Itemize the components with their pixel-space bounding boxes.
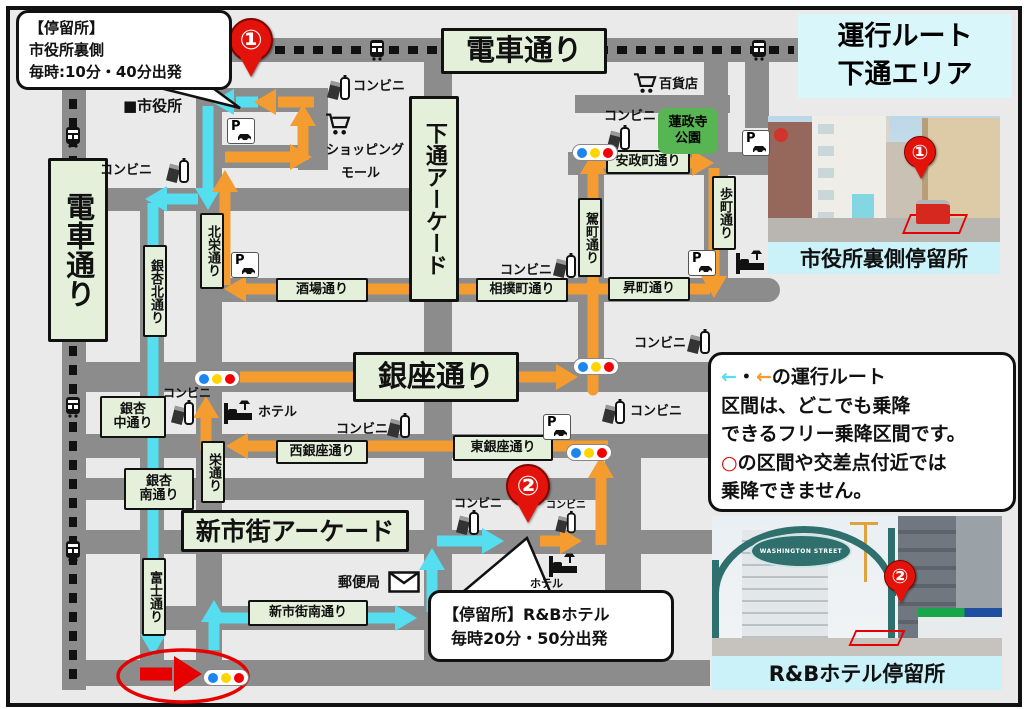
photo1-caption: 市役所裏側停留所 [768, 242, 1000, 274]
bus-stop-pin-1: ① [229, 18, 273, 88]
traffic-light-icon [194, 370, 240, 387]
convenience-store-icon [456, 509, 480, 541]
photo2-caption: R&Bホテル停留所 [712, 656, 1002, 690]
signal-blue [577, 148, 587, 158]
label-line: 銀杏中通り [113, 403, 152, 431]
tram-icon [64, 396, 82, 422]
notice-dot: ・ [737, 366, 756, 388]
photo2-pin: ② [884, 560, 918, 611]
label-icho-minami-dori: 銀杏南通り [124, 468, 194, 510]
signal-blue [578, 362, 588, 372]
convenience-store-label: コンビニ [100, 164, 152, 178]
parking-icon: P [543, 414, 571, 440]
park-name-line: 蓮政寺 [668, 115, 707, 131]
notice-line2: 区間は、どこでも乗降 [721, 392, 1003, 421]
convenience-store-icon [687, 328, 711, 360]
traffic-light-icon [203, 669, 249, 686]
photo1-road [768, 218, 1000, 242]
label-nishi-ginza-dori: 西銀座通り [276, 440, 368, 464]
label-icho-kita-dori: 銀杏北通り [143, 245, 167, 337]
notice-line5: 乗降できません。 [721, 477, 1003, 506]
hotel-bed-icon [223, 400, 253, 430]
notice-line1-rest: の運行ルート [772, 366, 886, 388]
convenience-store-icon [387, 412, 411, 444]
bus-stop-2-callout: 【停留所】R&Bホテル 毎時20分・50分出発 [428, 590, 674, 662]
convenience-store-icon [327, 74, 351, 106]
traffic-light-icon [572, 144, 618, 161]
label-ginza-dori: 銀座通り [353, 352, 519, 402]
callout2-line2: 毎時20分・50分出発 [443, 627, 659, 651]
notice-line4-rest: の区間や交差点付近では [738, 452, 947, 474]
convenience-store-label: コンビニ [500, 264, 552, 278]
bus-stop-1-callout: 【停留所】 市役所裏側 毎時:10分・40分出発 [16, 10, 232, 90]
city-hall-label: ■市役所 [123, 98, 182, 115]
post-office-envelope-icon [388, 571, 420, 597]
signal-blue [208, 673, 218, 683]
tram-icon [64, 540, 82, 566]
label-shinshigai-arcade: 新市街アーケード [181, 510, 409, 552]
notice-line4: ○の区間や交差点付近では [721, 449, 1003, 478]
callout1-line1: 【停留所】 [29, 18, 219, 40]
cyan-arrow-glyph: ← [721, 366, 737, 388]
convenience-store-icon [555, 510, 577, 539]
convenience-store-label: コンビニ [604, 110, 656, 124]
street-nishi-higashi-ginza [86, 434, 740, 458]
callout1-line2: 市役所裏側 [29, 40, 219, 62]
street-sakae-column [196, 62, 222, 660]
callout1-line3: 毎時:10分・40分出発 [29, 62, 219, 84]
photo-rb-hotel-stop: WASHINGTON STREET ② [712, 516, 1002, 656]
orange-arrow-glyph: ← [756, 366, 772, 388]
signal-yellow [590, 148, 600, 158]
photo1-red-shuttle-bus [916, 200, 950, 224]
title-line1: 運行ルート [838, 18, 973, 56]
parking-icon: P [227, 118, 255, 144]
photo2-crane-arm [850, 522, 878, 525]
hotel-label: ホテル [530, 578, 563, 590]
shopping-cart-icon [632, 70, 657, 100]
signal-red [603, 148, 613, 158]
convenience-store-label: コンビニ [336, 423, 388, 437]
label-higashi-ginza-dori: 東銀座通り [453, 435, 553, 461]
photo2-arch-sign: WASHINGTON STREET [750, 534, 852, 568]
pin-tail [913, 164, 929, 187]
photo1-pin: ① [904, 136, 938, 187]
post-office-label: 郵便局 [338, 576, 380, 591]
route-map-canvas: 電車通り 電車通り 下通アーケード 銀座通り 新市街アーケード 北栄通り 銀杏北… [0, 0, 1024, 709]
signal-yellow [591, 362, 601, 372]
tram-icon [750, 39, 768, 65]
parking-icon: P [742, 130, 770, 156]
pin-number: ② [884, 560, 916, 592]
shopping-mall-label: モール [341, 167, 380, 181]
label-densha-dori-top: 電車通り [441, 28, 607, 74]
title-line2: 下通エリア [838, 56, 973, 94]
pin-number: ② [506, 464, 550, 508]
convenience-store-label: コンビニ [353, 80, 405, 94]
signal-red [597, 448, 607, 458]
label-hokuei-dori: 北栄通り [200, 213, 224, 289]
signal-red [234, 673, 244, 683]
signal-yellow [221, 673, 231, 683]
label-fuji-dori: 富士通り [142, 558, 166, 636]
label-shinshigai-minami-dori: 新市街南通り [248, 600, 368, 626]
convenience-store-icon [553, 252, 577, 284]
photo2-stop-zone-outline [848, 630, 905, 646]
label-shimotori-arcade: 下通アーケード [409, 96, 459, 302]
parking-icon: P [688, 250, 716, 276]
department-store-label: 百貨店 [659, 78, 698, 92]
map-title: 運行ルート 下通エリア [798, 14, 1012, 98]
street-northeast-stub [745, 62, 769, 128]
pin-tail [240, 57, 262, 88]
pin-tail [517, 503, 539, 534]
signal-red [604, 362, 614, 372]
signal-blue [199, 374, 209, 384]
label-densha-dori-left: 電車通り [48, 158, 108, 342]
label-nobori-machi-dori: 昇町通り [608, 277, 690, 301]
tram-icon [368, 39, 386, 65]
convenience-store-icon [602, 398, 626, 430]
traffic-light-icon [573, 358, 619, 375]
label-icho-naka-dori: 銀杏中通り [100, 396, 166, 438]
signal-yellow [212, 374, 222, 384]
pin-number: ① [904, 136, 936, 168]
convenience-store-label: コンビニ [634, 337, 686, 351]
bus-stop-pin-2: ② [506, 464, 550, 534]
photo-cityhall-stop: ① [768, 116, 1000, 242]
signal-yellow [584, 448, 594, 458]
convenience-store-icon [171, 399, 195, 431]
signal-blue [571, 448, 581, 458]
label-aruki-machi-dori: 歩町通り [712, 176, 736, 250]
photo1-balconies [818, 124, 834, 224]
tram-icon [64, 126, 82, 152]
shopping-cart-icon [324, 110, 351, 142]
notice-line1: ←・←の運行ルート [721, 363, 1003, 392]
parking-icon: P [231, 252, 259, 278]
pin-number: ① [229, 18, 273, 62]
free-ride-notice-box: ←・←の運行ルート 区間は、どこでも乗降 できるフリー乗降区間です。 ○の区間や… [708, 352, 1016, 512]
label-kago-machi-dori: 駕町通り [578, 198, 602, 277]
renseiji-park-label: 蓮政寺公園 [658, 108, 718, 154]
pin-tail [893, 588, 909, 611]
photo1-building-left-sign [774, 128, 788, 142]
traffic-light-icon [566, 444, 612, 461]
red-circle-glyph: ○ [721, 452, 738, 474]
hotel-bed-icon [735, 250, 765, 280]
convenience-store-icon [166, 157, 190, 189]
label-sakae-dori: 栄通り [201, 441, 225, 503]
convenience-store-label: コンビニ [630, 405, 682, 419]
notice-line3: できるフリー乗降区間です。 [721, 420, 1003, 449]
street-bottom [62, 660, 710, 686]
park-name-line: 公園 [675, 131, 701, 147]
callout2-line1: 【停留所】R&Bホテル [443, 603, 659, 627]
signal-red [225, 374, 235, 384]
label-line: 銀杏南通り [139, 475, 178, 503]
label-sakaba-dori: 酒場通り [276, 278, 368, 302]
shopping-mall-label: ショッピング [326, 144, 404, 158]
hotel-label: ホテル [258, 406, 297, 420]
